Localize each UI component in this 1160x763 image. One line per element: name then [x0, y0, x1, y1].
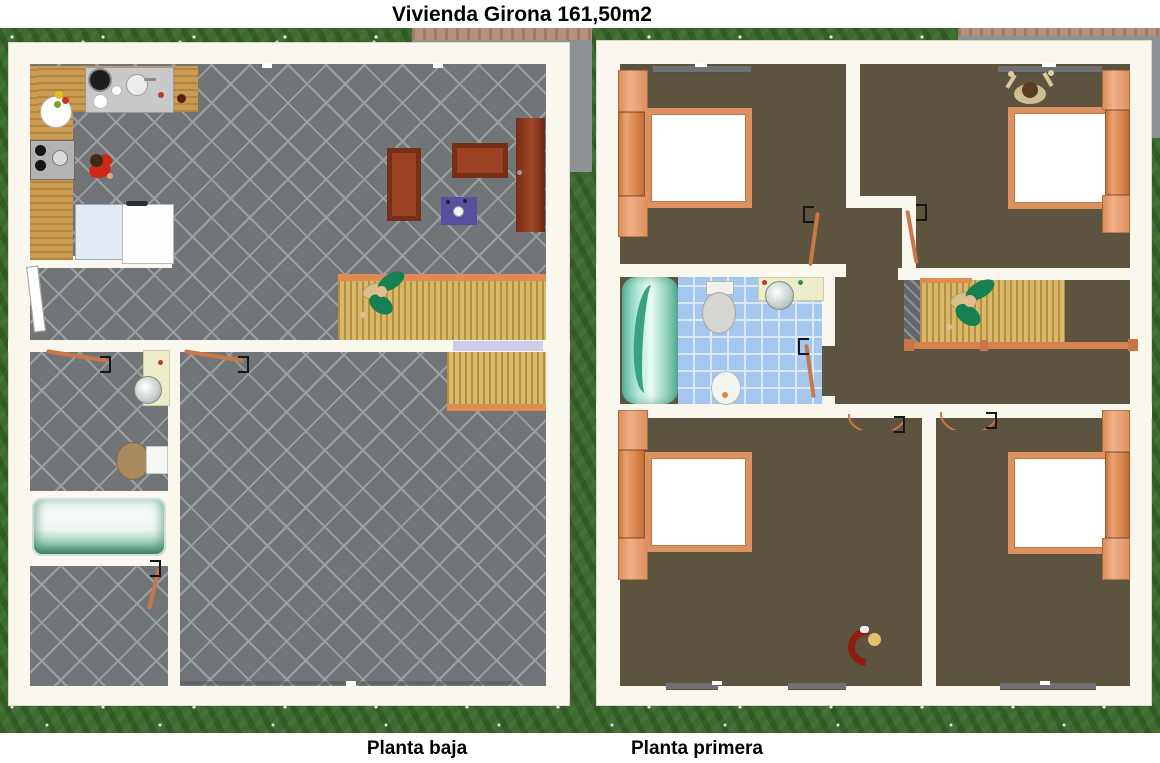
pb-sink-soap: [158, 360, 163, 365]
pp-window-tick-3: [712, 681, 722, 685]
door-bedroom-tr-handle: [916, 204, 927, 221]
person-green-stairs-pp: [942, 280, 998, 338]
pp-sink-basin: [765, 281, 794, 310]
terrace-edge-right: [958, 28, 1160, 36]
pb-wall-below-tub: [28, 556, 168, 566]
person-green-head: [376, 286, 387, 297]
kitchen-dishwasher: [75, 204, 124, 260]
wardrobe-bl-top: [618, 410, 648, 450]
person-tan-bedroom: [1006, 70, 1054, 110]
pb-toilet-seat: [116, 442, 150, 480]
person-red-hand: [107, 173, 113, 179]
living-armchair: [452, 143, 508, 178]
pb-window-tick-2: [433, 63, 443, 68]
stove-burner-1: [35, 145, 46, 156]
person-tan-hand-right: [1048, 70, 1054, 76]
pp-sink-soap-red: [762, 280, 767, 285]
wardrobe-tl-top: [618, 70, 648, 112]
door-bedroom-tl-handle: [803, 206, 814, 223]
kitchen-faucet: [144, 78, 156, 81]
person-redcap-bedroom: [846, 624, 888, 658]
pb-window-lavender: [453, 341, 543, 351]
stove-burner-2: [35, 160, 46, 171]
wardrobe-tl-bottom: [618, 196, 648, 237]
wardrobe-bl-bottom: [618, 538, 648, 580]
pp-stairs-railing: [904, 342, 1138, 349]
page-title: Vivienda Girona 161,50m2: [0, 3, 1044, 27]
wardrobe-br-bottom: [1102, 538, 1130, 580]
pp-railing-post-3: [1128, 339, 1138, 351]
pb-sink-basin: [134, 376, 162, 404]
person-green2-hand: [946, 324, 952, 330]
pp-window-bottom-1: [666, 683, 718, 689]
kitchen-coffee-maker: [177, 94, 186, 103]
bed-bottom-left: [645, 452, 752, 552]
wardrobe-br-main: [1105, 452, 1130, 538]
pb-stairs-lower-flight: [447, 352, 546, 406]
pp-stair-drop-edge: [904, 280, 920, 342]
terrace-edge-left: [412, 28, 592, 40]
pp-window-tick-1: [695, 63, 707, 67]
pb-floor-storage: [30, 566, 168, 686]
kitchen-item-red: [158, 92, 164, 98]
pp-wall-between-top-bedrooms: [846, 64, 860, 204]
kitchen-plate-large: [93, 94, 108, 109]
door-bedroom-br-handle: [986, 412, 997, 429]
pp-window-bottom-2: [788, 683, 846, 689]
wardrobe-tr-main: [1105, 110, 1130, 195]
fruit-red: [62, 97, 69, 104]
door-bedroom-bl-handle: [894, 416, 905, 433]
wardrobe-bl-main: [618, 450, 645, 538]
pb-garage-door-handle: [238, 356, 249, 373]
pp-toilet-detail: [722, 392, 728, 398]
living-sofa: [387, 148, 421, 221]
pp-shower-tub-curve: [630, 284, 666, 394]
wardrobe-tr-bottom: [1102, 195, 1130, 233]
pb-toilet-tank: [146, 446, 168, 474]
pb-storage-door-handle: [150, 560, 161, 577]
pp-toilet: [711, 371, 741, 405]
bed-top-right: [1008, 107, 1115, 209]
stove-pan: [52, 150, 68, 166]
pp-wall-between-bottom-bedrooms: [922, 418, 936, 686]
person-green-stairs-pb: [358, 274, 410, 324]
pb-window-tick-1: [262, 63, 272, 68]
pb-bathroom-door-handle: [100, 356, 111, 373]
wardrobe-tl-main: [618, 112, 645, 196]
bed-top-left: [645, 108, 752, 208]
person-tan-head: [1022, 82, 1038, 98]
person-redcap-pillow: [860, 626, 869, 633]
caption-planta-primera: Planta primera: [597, 738, 797, 760]
person-red-kitchen: [87, 150, 115, 186]
kitchen-fridge: [122, 204, 174, 264]
pb-wall-above-tub: [28, 491, 168, 498]
rug-cup-1: [446, 200, 450, 204]
wardrobe-br-top: [1102, 410, 1130, 452]
rug-cup-2: [463, 199, 467, 203]
pp-railing-post-1: [904, 339, 914, 351]
caption-strip: [0, 733, 1160, 763]
pp-wall-below-bedroom-tl: [596, 264, 846, 277]
pp-shower-tub: [622, 277, 678, 404]
pp-sink-soap-green: [798, 280, 803, 285]
pp-bathroom-door-handle: [798, 338, 809, 355]
cooktop-burner: [90, 70, 110, 90]
fruit-green: [54, 101, 61, 108]
pp-railing-post-2: [980, 340, 988, 351]
person-green2-head: [964, 295, 976, 307]
sideboard-handle: [517, 170, 522, 175]
rug-teapot: [453, 206, 464, 217]
pb-window-tick-3: [346, 681, 356, 686]
person-red-head: [90, 154, 103, 167]
pb-stairs-edge-bottom: [447, 404, 546, 411]
person-green-hand: [360, 312, 366, 318]
kitchen-plate-small: [111, 85, 122, 96]
person-redcap-head: [868, 633, 881, 646]
pp-bidet: [702, 292, 736, 334]
floorplan-image: Vivienda Girona 161,50m2: [0, 0, 1160, 763]
pb-bathtub: [32, 498, 166, 556]
living-sideboard: [516, 118, 545, 232]
wardrobe-tr-top: [1102, 70, 1130, 110]
fridge-handle: [126, 201, 148, 206]
caption-planta-baja: Planta baja: [317, 738, 517, 760]
pp-window-tick-2: [1042, 63, 1056, 67]
person-tan-hand-left: [1008, 71, 1014, 77]
pp-window-tick-4: [1040, 681, 1050, 685]
